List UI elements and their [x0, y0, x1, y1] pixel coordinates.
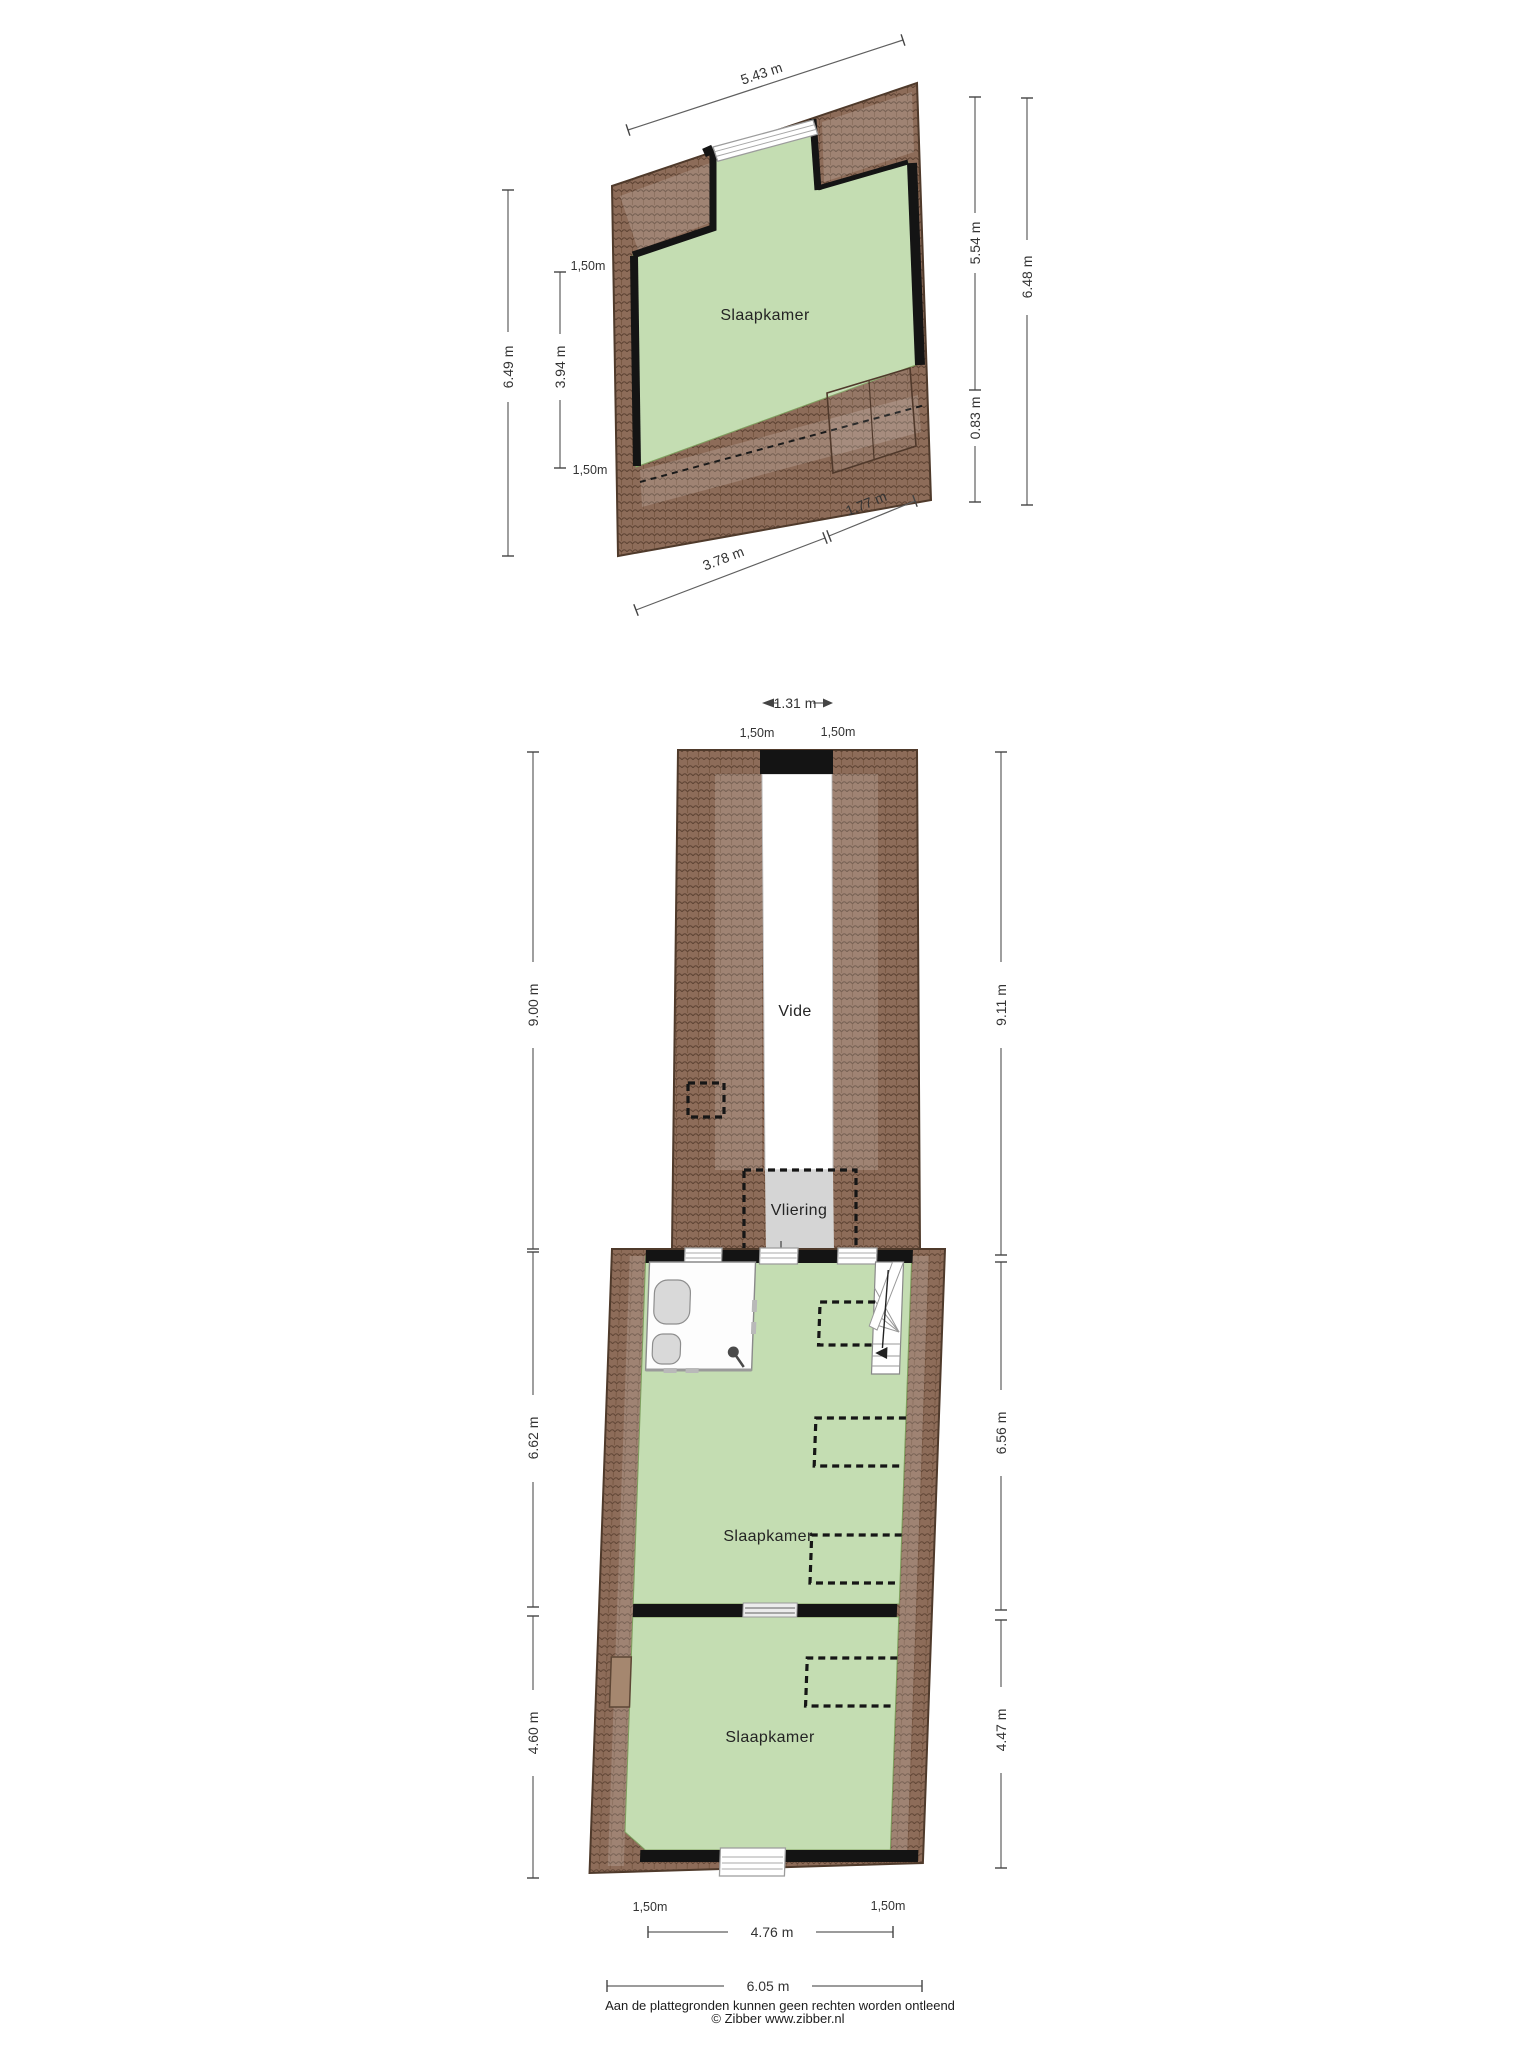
shower-area: [646, 1262, 759, 1373]
sanitary-fixture: [652, 1334, 681, 1364]
svg-text:1,50m: 1,50m: [573, 463, 608, 477]
svg-text:6.05 m: 6.05 m: [747, 1978, 790, 1994]
svg-text:1.31 m: 1.31 m: [774, 695, 817, 711]
svg-text:6.56 m: 6.56 m: [993, 1412, 1009, 1455]
roof-highlight: [833, 774, 878, 1170]
vliering-label: Vliering: [771, 1202, 828, 1219]
dim-left-upper: 9.00 m: [525, 752, 541, 1249]
svg-text:6.49 m: 6.49 m: [500, 346, 516, 389]
svg-text:9.00 m: 9.00 m: [525, 984, 541, 1027]
dim-right-upper: 9.11 m: [993, 752, 1009, 1255]
dim-attic-left-inner: 1,50m 3.94 m 1,50m: [552, 259, 607, 477]
ridge-section: [672, 750, 920, 1302]
divider-door: [743, 1603, 798, 1617]
svg-text:0.83 m: 0.83 m: [967, 397, 983, 440]
svg-text:4.47 m: 4.47 m: [993, 1709, 1009, 1752]
sanitary-fixture: [653, 1280, 691, 1324]
attic-wall: [704, 149, 713, 153]
roof-highlight: [715, 774, 762, 1170]
dim-vide-width: 1.31 m: [762, 695, 833, 711]
svg-text:1,50m: 1,50m: [571, 259, 606, 273]
svg-text:5.43 m: 5.43 m: [739, 59, 785, 88]
bedroom-bottom-label: Slaapkamer: [725, 1729, 815, 1746]
svg-text:3.78 m: 3.78 m: [700, 543, 746, 573]
dim-attic-left-outer: 6.49 m: [500, 190, 516, 556]
floor-plan-first-floor: Vide Vliering Slaapkamer Slaapkamer 1.31…: [525, 695, 1009, 1994]
glass-panel-mark: [752, 1300, 757, 1312]
dim-left-lower: 4.60 m: [525, 1616, 541, 1878]
glass-panel-mark: [664, 1368, 677, 1373]
glass-panel-mark: [751, 1322, 756, 1334]
svg-text:9.11 m: 9.11 m: [993, 984, 1009, 1026]
dim-bottom-outer: 6.05 m: [607, 1978, 922, 1994]
knee-label: 1,50m: [740, 726, 775, 740]
knee-label: 1,50m: [633, 1900, 668, 1914]
dim-attic-right-outer: 6.48 m: [1019, 98, 1035, 505]
floorplan-canvas: Slaapkamer 5.43 m 6.49 m 1,50m 3.94 m 1,…: [0, 0, 1536, 2048]
attic-wall: [634, 256, 637, 466]
dim-bottom-inner: 4.76 m: [648, 1924, 893, 1940]
svg-text:6.62 m: 6.62 m: [525, 1417, 541, 1460]
left-roof-dormer: [610, 1657, 632, 1707]
glass-panel-mark: [686, 1368, 699, 1373]
bottom-window: [719, 1848, 785, 1876]
dim-attic-right-inner: 5.54 m 0.83 m: [967, 97, 983, 502]
svg-text:5.54 m: 5.54 m: [967, 222, 983, 265]
vide-label: Vide: [778, 1003, 811, 1020]
mid-window: [759, 1248, 798, 1264]
floorplan-page: Slaapkamer 5.43 m 6.49 m 1,50m 3.94 m 1,…: [0, 0, 1536, 2048]
floor-plan-attic: Slaapkamer 5.43 m 6.49 m 1,50m 3.94 m 1,…: [500, 34, 1035, 616]
bedroom-mid-label: Slaapkamer: [723, 1528, 813, 1545]
svg-text:4.76 m: 4.76 m: [751, 1924, 794, 1940]
svg-text:3.94 m: 3.94 m: [552, 346, 568, 389]
dim-right-lower: 4.47 m: [993, 1620, 1009, 1868]
svg-text:6.48 m: 6.48 m: [1019, 256, 1035, 299]
ridge-top-wall: [760, 750, 833, 774]
svg-text:4.60 m: 4.60 m: [525, 1712, 541, 1755]
copyright-text: © Zibber www.zibber.nl: [711, 2011, 844, 2026]
main-body-section: [589, 1248, 945, 1876]
vide-opening: [762, 774, 833, 1170]
knee-label: 1,50m: [821, 725, 856, 739]
dim-left-mid: 6.62 m: [525, 1252, 541, 1607]
dim-right-mid: 6.56 m: [993, 1262, 1009, 1610]
attic-room-label: Slaapkamer: [720, 307, 810, 324]
knee-label: 1,50m: [871, 1899, 906, 1913]
mid-window: [837, 1248, 877, 1264]
